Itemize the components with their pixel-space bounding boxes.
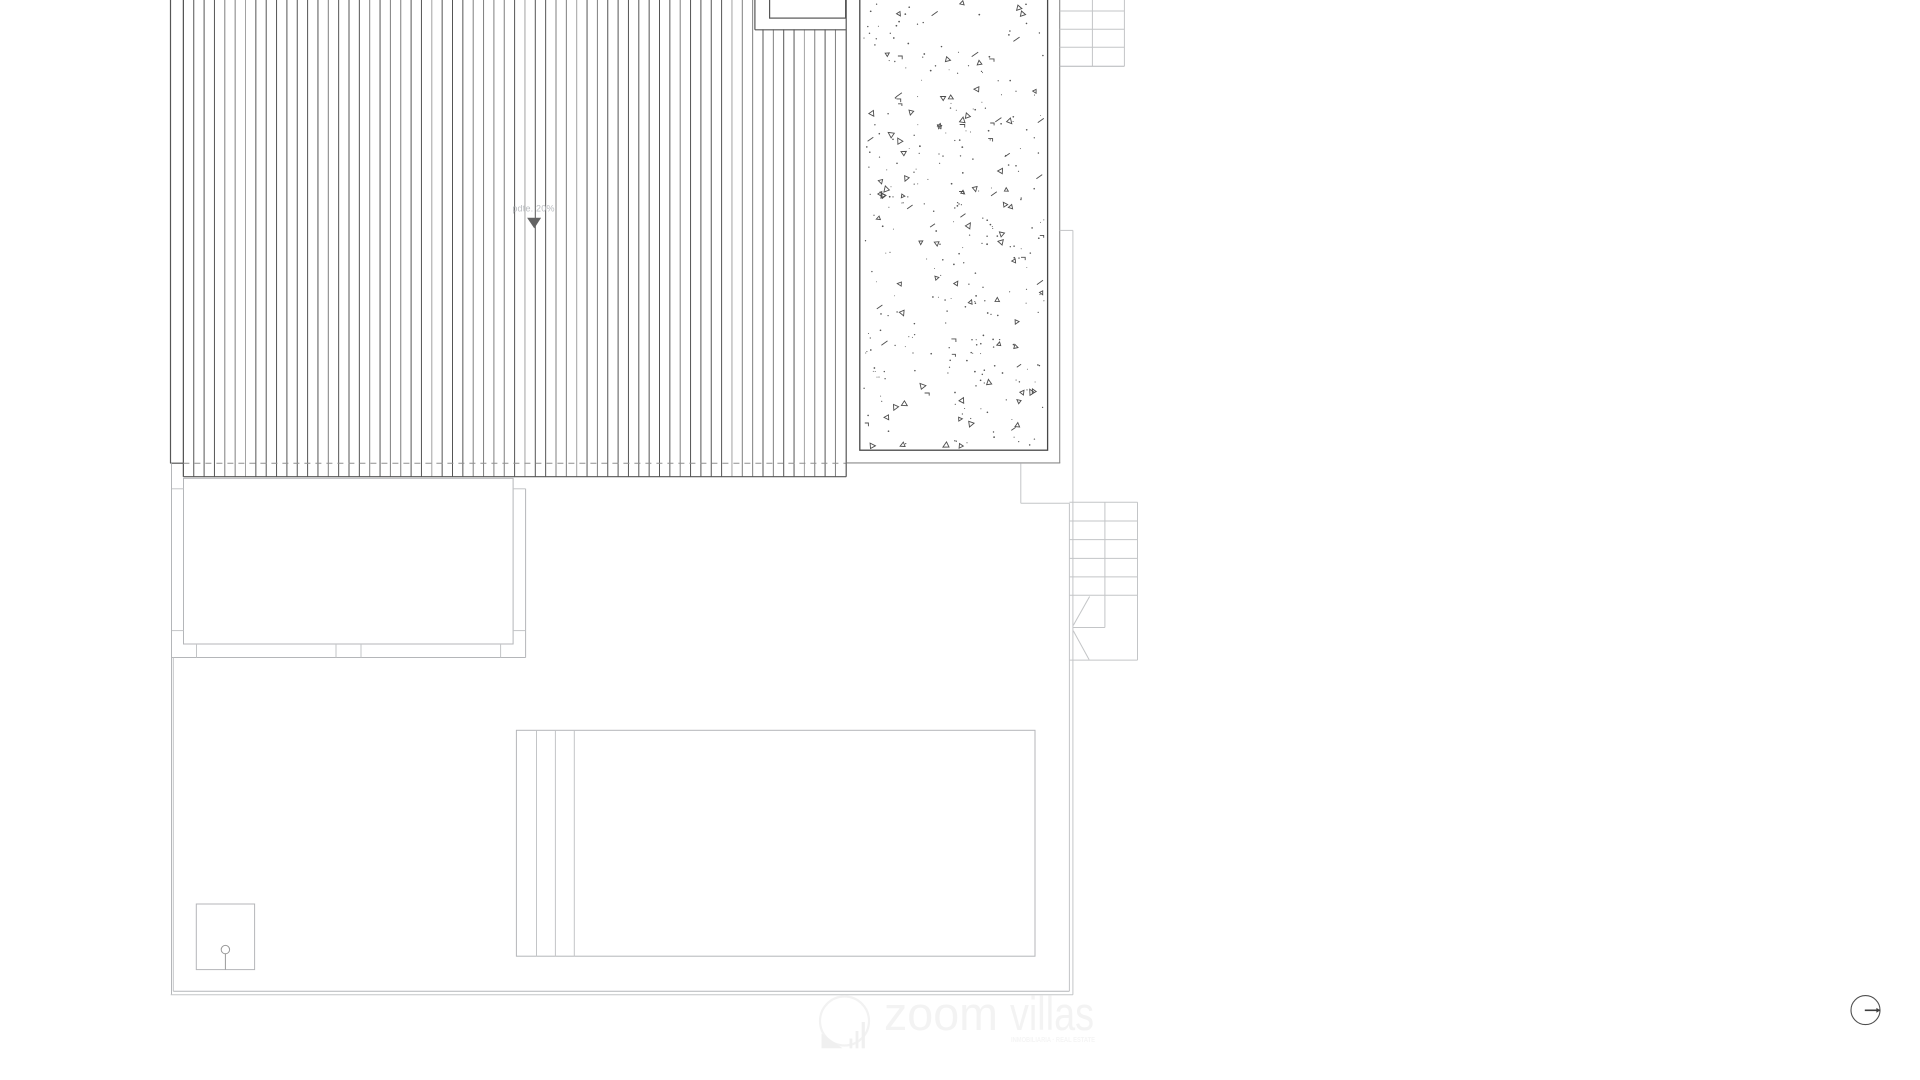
svg-text:INMOBILIARIA · REAL ESTATE: INMOBILIARIA · REAL ESTATE [1011,1035,1095,1044]
svg-text:zoom: zoom [884,987,998,1040]
svg-text:villas: villas [1010,987,1094,1040]
svg-text:pdte. 20%: pdte. 20% [512,203,554,213]
